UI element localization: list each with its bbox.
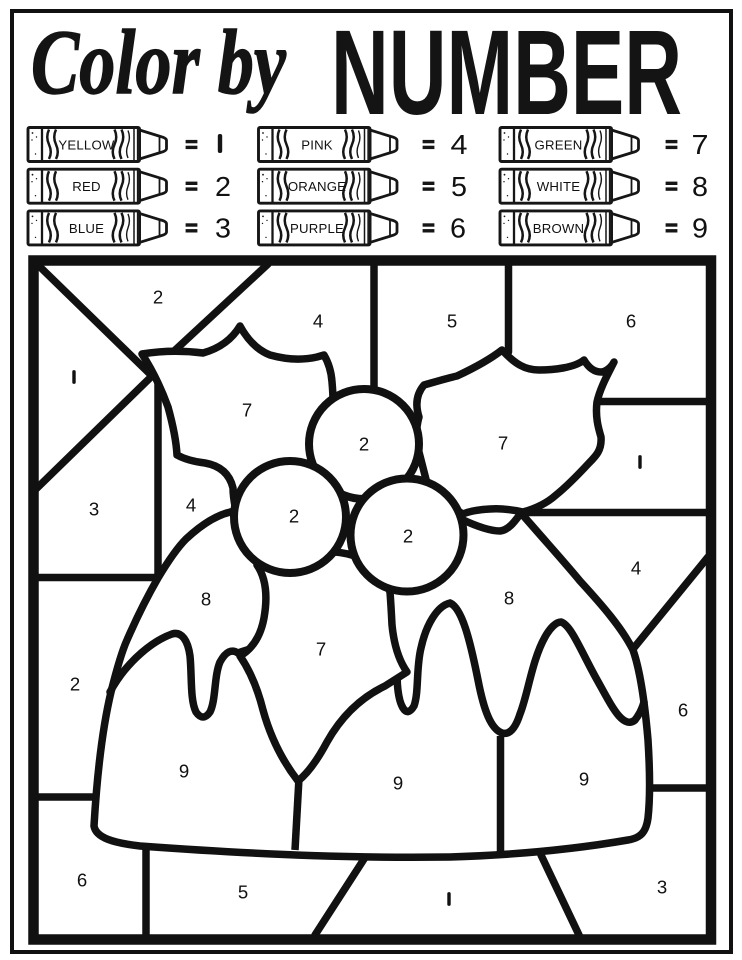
- svg-text:PURPLE: PURPLE: [290, 221, 344, 236]
- svg-text:2: 2: [403, 526, 413, 547]
- svg-text:7: 7: [316, 639, 326, 660]
- svg-text:8: 8: [692, 171, 708, 202]
- svg-text:5: 5: [238, 882, 248, 903]
- svg-text:5: 5: [451, 171, 467, 202]
- svg-text:7: 7: [692, 129, 709, 160]
- svg-text:9: 9: [393, 773, 403, 794]
- svg-text:4: 4: [313, 311, 323, 332]
- svg-text:ORANGE: ORANGE: [288, 179, 346, 194]
- svg-text:4: 4: [451, 129, 468, 160]
- svg-text:7: 7: [242, 400, 252, 421]
- svg-text:6: 6: [450, 213, 466, 244]
- svg-text:3: 3: [215, 213, 231, 244]
- svg-text:Color by: Color by: [31, 11, 287, 113]
- svg-text:RED: RED: [72, 179, 100, 194]
- svg-text:WHITE: WHITE: [537, 179, 581, 194]
- svg-text:9: 9: [179, 761, 189, 782]
- svg-text:2: 2: [359, 434, 369, 455]
- svg-text:2: 2: [70, 674, 80, 695]
- svg-text:3: 3: [657, 877, 667, 898]
- svg-text:NUMBER: NUMBER: [331, 4, 682, 140]
- svg-text:2: 2: [215, 171, 231, 202]
- svg-text:5: 5: [447, 311, 457, 332]
- svg-text:YELLOW: YELLOW: [58, 138, 115, 153]
- svg-text:9: 9: [692, 213, 708, 244]
- svg-text:6: 6: [77, 870, 87, 891]
- svg-text:BROWN: BROWN: [533, 221, 585, 236]
- svg-text:8: 8: [504, 588, 514, 609]
- svg-text:6: 6: [626, 311, 636, 332]
- svg-text:BLUE: BLUE: [69, 221, 104, 236]
- svg-text:9: 9: [579, 769, 589, 790]
- svg-text:2: 2: [153, 287, 163, 308]
- svg-text:PINK: PINK: [301, 138, 333, 153]
- svg-text:4: 4: [631, 558, 641, 579]
- svg-text:4: 4: [186, 495, 196, 516]
- svg-text:7: 7: [498, 433, 508, 454]
- svg-text:2: 2: [289, 506, 299, 527]
- svg-text:8: 8: [201, 589, 211, 610]
- svg-text:6: 6: [678, 700, 688, 721]
- svg-text:GREEN: GREEN: [535, 138, 583, 153]
- svg-text:3: 3: [89, 499, 99, 520]
